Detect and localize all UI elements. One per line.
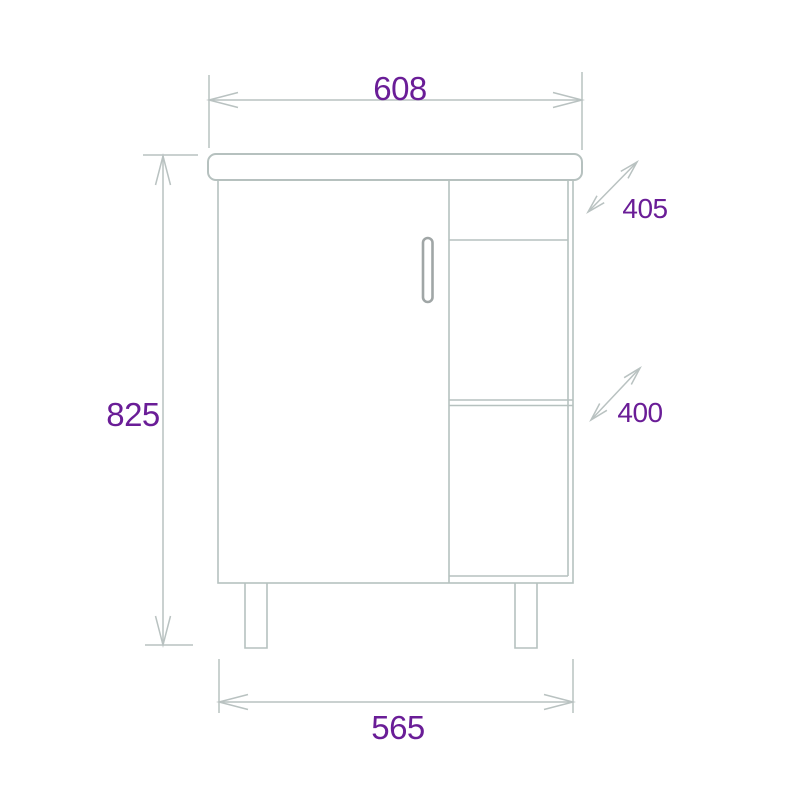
dim-width-top-label: 608 — [373, 70, 427, 107]
cabinet — [208, 154, 582, 648]
door-handle-icon — [423, 238, 433, 302]
dim-depth-top: 405 — [588, 162, 668, 224]
dim-width-bottom: 565 — [219, 659, 573, 746]
countertop-outline — [208, 154, 582, 180]
drawing-canvas: 608 825 565 405 — [0, 0, 800, 800]
vanity-dimension-drawing: 608 825 565 405 — [0, 0, 800, 800]
dim-depth-shelf-label: 400 — [617, 397, 662, 428]
shelf-line-lower — [449, 400, 573, 406]
left-leg-outline — [245, 583, 267, 648]
dim-width-bottom-label: 565 — [371, 709, 425, 746]
dim-width-top: 608 — [209, 70, 582, 150]
right-leg-outline — [515, 583, 537, 648]
dim-depth-top-label: 405 — [622, 193, 667, 224]
dim-height-left-label: 825 — [106, 396, 160, 433]
dim-height-left: 825 — [106, 155, 198, 645]
dim-depth-shelf: 400 — [591, 368, 663, 428]
